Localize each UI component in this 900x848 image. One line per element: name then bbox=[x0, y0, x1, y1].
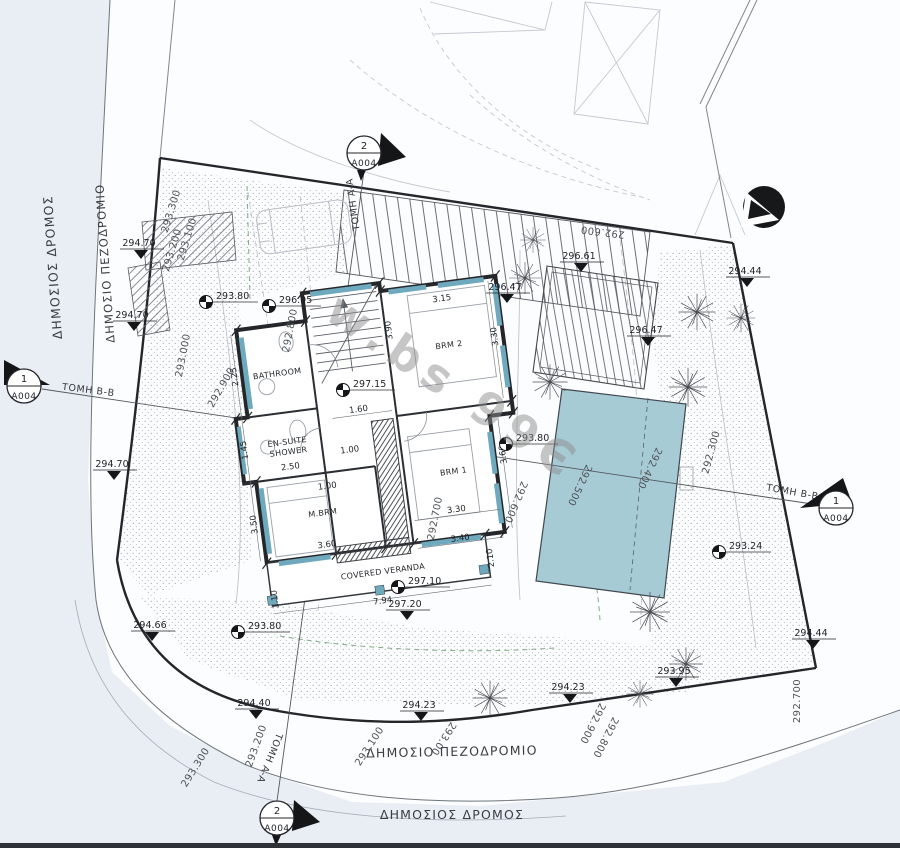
spot-label: 293.80 bbox=[248, 621, 281, 632]
spot-label: 296.47 bbox=[629, 325, 662, 336]
spot-label: 297.10 bbox=[408, 576, 441, 587]
spot-label: 293.80 bbox=[216, 291, 249, 302]
spot-label: 294.44 bbox=[728, 266, 761, 277]
spot-label: 294.70 bbox=[122, 238, 155, 249]
section-number: 1 bbox=[21, 374, 27, 385]
spot-label: 297.20 bbox=[388, 599, 421, 610]
spot-label: 294.23 bbox=[551, 682, 584, 693]
spot-label: 293.24 bbox=[729, 541, 762, 552]
contour-label: 292.700 bbox=[792, 679, 803, 723]
spot-label: 294.44 bbox=[794, 628, 827, 639]
spot-label: 296.95 bbox=[279, 295, 312, 306]
spot-label: 296.61 bbox=[562, 251, 595, 262]
site-plan-page: BATHROOM EN-SUITE SHOWER 2.50 M.BRM BRM … bbox=[0, 0, 900, 848]
spot-label: 294.70 bbox=[95, 459, 128, 470]
spot-label: 294.40 bbox=[237, 698, 270, 709]
section-sheet: A004 bbox=[823, 514, 848, 524]
section-number: 2 bbox=[361, 141, 367, 152]
spot-label: 294.70 bbox=[115, 310, 148, 321]
street-label-road-bottom: ΔΗΜΟΣΙΟΣ ΔΡΟΜΟΣ bbox=[380, 807, 524, 822]
section-number: 2 bbox=[274, 806, 280, 817]
section-sheet: A004 bbox=[11, 392, 36, 402]
scan-edge-artifact bbox=[0, 843, 900, 848]
street-label-sidewalk-bottom: ΔΗΜΟΣΙΟ ΠΕΖΟΔΡΟΜΙΟ bbox=[366, 743, 538, 761]
spot-label: 294.66 bbox=[133, 620, 166, 631]
spot-label: 297.15 bbox=[353, 379, 386, 390]
spot-label: 293.95 bbox=[657, 666, 690, 677]
section-sheet: A004 bbox=[264, 824, 289, 834]
spot-label: 296.47 bbox=[488, 282, 521, 293]
section-number: 1 bbox=[833, 496, 839, 507]
spot-label: 294.23 bbox=[402, 700, 435, 711]
site-plan-drawing: BATHROOM EN-SUITE SHOWER 2.50 M.BRM BRM … bbox=[0, 0, 900, 848]
section-sheet: A004 bbox=[351, 159, 376, 169]
